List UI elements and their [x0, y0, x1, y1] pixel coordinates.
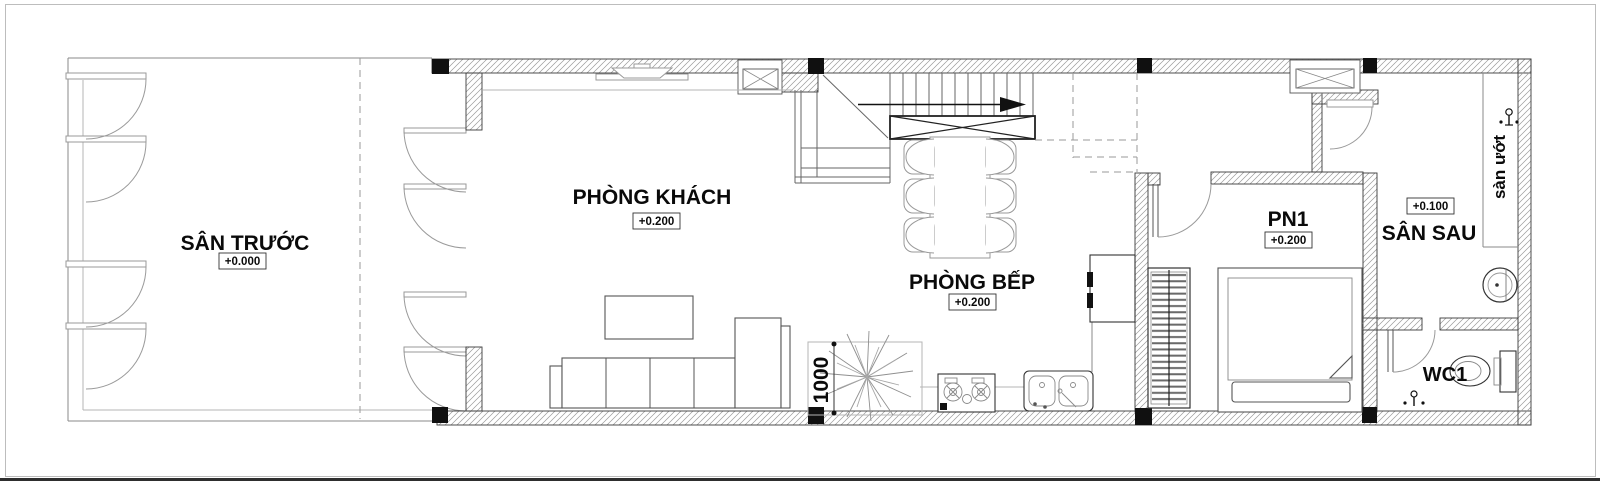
svg-text:+0.200: +0.200 [639, 216, 675, 228]
coffee-table [605, 296, 693, 339]
void-outline [1035, 73, 1137, 172]
svg-text:1000: 1000 [810, 357, 833, 404]
dining-table [930, 137, 990, 258]
front-yard-level-badge: +0.000 [219, 253, 266, 269]
dimension-1000: 1000 [810, 342, 837, 416]
wardrobe [1148, 268, 1190, 408]
folding-door-living [404, 128, 466, 411]
backyard-level-badge: +0.100 [1407, 198, 1454, 214]
fridge [1087, 255, 1135, 322]
living-room: PHÒNG KHÁCH +0.200 [483, 64, 793, 408]
window-backyard [1290, 60, 1360, 93]
kitchen-label: PHÒNG BẾP [909, 270, 1035, 294]
svg-text:+0.200: +0.200 [1271, 235, 1307, 247]
bedroom-1-label: PN1 [1268, 208, 1309, 231]
gate-door-left [66, 73, 146, 389]
sink-icon [1024, 371, 1093, 411]
stove-icon [938, 374, 995, 412]
wet-floor-label: sàn ướt [1490, 135, 1509, 199]
washbasin-icon [1483, 268, 1517, 302]
svg-text:+0.100: +0.100 [1413, 201, 1449, 213]
floor-plan-drawing: SÂN TRƯỚC +0.000 [0, 0, 1600, 482]
stair-break-box [890, 116, 1035, 139]
bedroom-1-level-badge: +0.200 [1265, 232, 1312, 248]
wc-1: WC1 [1388, 330, 1516, 406]
back-yard-label: SÂN SAU [1382, 221, 1477, 245]
backyard-door [1327, 100, 1373, 149]
floor-plan-page: SÂN TRƯỚC +0.000 [0, 0, 1600, 482]
floor-drain-icon [1403, 391, 1424, 406]
bed [1218, 268, 1362, 412]
svg-text:+0.200: +0.200 [955, 297, 991, 309]
bedroom-door [1153, 184, 1211, 237]
svg-text:+0.000: +0.000 [225, 256, 261, 268]
faucet-icon-backyard [1499, 109, 1518, 125]
front-yard-label: SÂN TRƯỚC [181, 231, 310, 255]
living-room-label: PHÒNG KHÁCH [573, 185, 732, 209]
living-room-level-badge: +0.200 [633, 213, 680, 229]
bedroom-1: PN1 +0.200 [1148, 184, 1362, 412]
kitchen-level-badge: +0.200 [949, 294, 996, 310]
window-stairs [738, 60, 782, 94]
kitchen: PHÒNG BẾP +0.200 1000 [808, 137, 1135, 421]
wc-1-label: WC1 [1423, 364, 1467, 386]
front-yard: SÂN TRƯỚC +0.000 [66, 58, 466, 421]
